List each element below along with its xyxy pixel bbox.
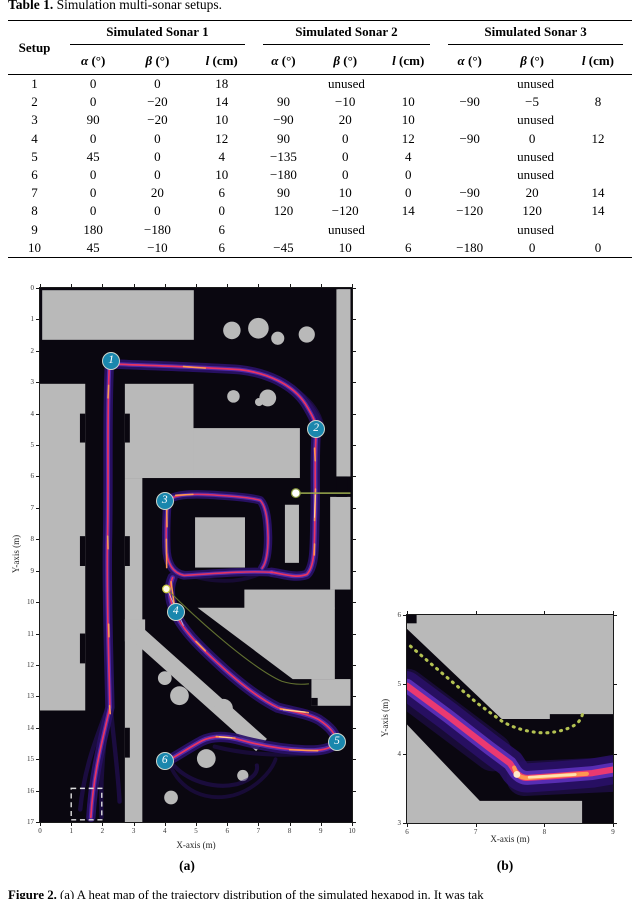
trajectory-marker-6: 6 <box>156 752 174 770</box>
tick-mark <box>613 823 617 824</box>
tick-mark <box>352 822 356 823</box>
tick-mark <box>36 696 40 697</box>
subcol-header-sonar3-length: l (cm) <box>564 48 632 75</box>
figure-caption: Figure 2. (a) A heat map of the trajecto… <box>8 888 636 899</box>
value-cell: 14 <box>564 202 632 220</box>
tick-mark <box>227 822 228 826</box>
value-cell: 0 <box>313 166 377 184</box>
y-tick-label: 2 <box>13 347 34 355</box>
value-cell: −10 <box>313 93 377 111</box>
tick-mark <box>403 823 407 824</box>
y-tick-label: 14 <box>13 724 34 732</box>
fig-b-xlabel: X-axis (m) <box>407 834 613 844</box>
paper-page: Table 1. Simulation multi-sonar setups. … <box>0 0 640 899</box>
value-cell: −5 <box>500 93 564 111</box>
x-tick-label: 1 <box>61 827 81 835</box>
table-body: 10018unusedunused20−201490−1010−90−58390… <box>8 75 632 258</box>
tick-mark <box>36 822 40 823</box>
value-cell: −45 <box>254 239 313 258</box>
value-cell: 90 <box>254 93 313 111</box>
tick-mark <box>36 445 40 446</box>
subcol-header-sonar2-beta: β (°) <box>313 48 377 75</box>
value-cell: 20 <box>500 184 564 202</box>
y-tick-label: 13 <box>13 692 34 700</box>
tick-mark <box>352 571 356 572</box>
y-tick-label: 3 <box>380 819 401 827</box>
tick-mark <box>196 822 197 826</box>
tick-mark <box>36 728 40 729</box>
trajectory-marker-3: 3 <box>156 492 174 510</box>
value-cell: 0 <box>500 130 564 148</box>
value-cell: 0 <box>61 202 125 220</box>
tick-mark <box>40 284 41 288</box>
tick-mark <box>36 571 40 572</box>
value-cell: 14 <box>190 93 254 111</box>
value-cell: 6 <box>190 239 254 258</box>
value-cell: 10 <box>377 111 439 129</box>
tick-mark <box>71 284 72 288</box>
tick-mark <box>321 822 322 826</box>
x-tick-label: 6 <box>397 828 417 836</box>
value-cell: 90 <box>61 111 125 129</box>
value-cell: 0 <box>125 148 189 166</box>
setup-cell: 8 <box>8 202 61 220</box>
value-cell: −135 <box>254 148 313 166</box>
setup-cell: 4 <box>8 130 61 148</box>
fig-b-ylabel: Y-axis (m) <box>380 699 390 737</box>
value-cell: −120 <box>439 202 500 220</box>
value-cell: −180 <box>254 166 313 184</box>
tick-mark <box>352 445 356 446</box>
value-cell: 4 <box>190 148 254 166</box>
value-cell: 120 <box>254 202 313 220</box>
x-tick-label: 10 <box>342 827 362 835</box>
value-cell: 6 <box>190 221 254 239</box>
value-cell: 90 <box>254 184 313 202</box>
value-cell: 10 <box>190 111 254 129</box>
value-cell: 0 <box>377 184 439 202</box>
subcol-header-sonar2-alpha: α (°) <box>254 48 313 75</box>
value-cell: −20 <box>125 93 189 111</box>
value-cell: 20 <box>125 184 189 202</box>
tick-mark <box>352 791 356 792</box>
unused-cell: unused <box>439 111 632 129</box>
unused-cell: unused <box>439 221 632 239</box>
tick-mark <box>352 634 356 635</box>
value-cell: 0 <box>125 202 189 220</box>
value-cell: 45 <box>61 148 125 166</box>
y-tick-label: 9 <box>13 567 34 575</box>
subcol-header-sonar2-length: l (cm) <box>377 48 439 75</box>
tick-mark <box>258 822 259 826</box>
tick-mark <box>36 414 40 415</box>
value-cell: −90 <box>254 111 313 129</box>
unused-cell: unused <box>254 75 439 94</box>
tick-mark <box>403 684 407 685</box>
tick-mark <box>36 759 40 760</box>
tick-mark <box>36 602 40 603</box>
subcol-header-sonar3-alpha: α (°) <box>439 48 500 75</box>
value-cell: −120 <box>313 202 377 220</box>
tick-mark <box>165 822 166 826</box>
tick-mark <box>613 754 617 755</box>
y-tick-label: 5 <box>13 441 34 449</box>
y-tick-label: 10 <box>13 598 34 606</box>
tick-mark <box>36 476 40 477</box>
tick-mark <box>352 665 356 666</box>
setup-column-header: Setup <box>8 21 61 75</box>
tick-mark <box>165 284 166 288</box>
value-cell: 12 <box>564 130 632 148</box>
table-title-text: Simulation multi-sonar setups. <box>53 0 222 12</box>
tick-mark <box>36 382 40 383</box>
value-cell: 20 <box>313 111 377 129</box>
y-tick-label: 15 <box>13 755 34 763</box>
value-cell: 10 <box>313 184 377 202</box>
tick-mark <box>102 822 103 826</box>
value-cell: 0 <box>61 75 125 94</box>
x-tick-label: 5 <box>186 827 206 835</box>
value-cell: −20 <box>125 111 189 129</box>
x-tick-label: 7 <box>248 827 268 835</box>
y-tick-label: 16 <box>13 787 34 795</box>
tick-mark <box>134 284 135 288</box>
value-cell: 8 <box>564 93 632 111</box>
setup-cell: 10 <box>8 239 61 258</box>
tick-mark <box>352 602 356 603</box>
value-cell: −10 <box>125 239 189 258</box>
table-row: 390−2010−902010unused <box>8 111 632 129</box>
y-tick-label: 4 <box>13 410 34 418</box>
x-tick-label: 3 <box>124 827 144 835</box>
unused-cell: unused <box>439 148 632 166</box>
value-cell: 0 <box>61 93 125 111</box>
subcaption-b: (b) <box>407 858 603 874</box>
subcol-header-sonar1-beta: β (°) <box>125 48 189 75</box>
x-tick-label: 8 <box>280 827 300 835</box>
value-cell: 4 <box>377 148 439 166</box>
value-cell: 6 <box>190 184 254 202</box>
x-tick-label: 4 <box>155 827 175 835</box>
x-tick-label: 7 <box>466 828 486 836</box>
tick-mark <box>403 615 407 616</box>
y-tick-label: 6 <box>13 472 34 480</box>
tick-mark <box>613 615 617 616</box>
map-b-graphic <box>407 615 613 823</box>
value-cell: 0 <box>125 166 189 184</box>
y-tick-label: 8 <box>13 535 34 543</box>
subcol-header-sonar1-alpha: α (°) <box>61 48 125 75</box>
value-cell: 0 <box>564 239 632 258</box>
table-title: Table 1. Simulation multi-sonar setups. <box>8 0 628 13</box>
tick-mark <box>321 284 322 288</box>
tick-mark <box>102 284 103 288</box>
tick-mark <box>613 684 617 685</box>
table-row: 54504−13504unused <box>8 148 632 166</box>
tick-mark <box>71 822 72 826</box>
value-cell: 0 <box>61 184 125 202</box>
table-row: 60010−18000unused <box>8 166 632 184</box>
value-cell: −180 <box>439 239 500 258</box>
value-cell: 12 <box>377 130 439 148</box>
table-group-header-row: Setup Simulated Sonar 1 Simulated Sonar … <box>8 21 632 49</box>
tick-mark <box>290 822 291 826</box>
tick-mark <box>352 414 356 415</box>
value-cell: 10 <box>313 239 377 258</box>
tick-mark <box>352 508 356 509</box>
tick-mark <box>352 696 356 697</box>
value-cell: −90 <box>439 130 500 148</box>
tick-mark <box>476 823 477 827</box>
setup-cell: 6 <box>8 166 61 184</box>
value-cell: 90 <box>254 130 313 148</box>
value-cell: 0 <box>190 202 254 220</box>
tick-mark <box>352 382 356 383</box>
tick-mark <box>196 284 197 288</box>
value-cell: 18 <box>190 75 254 94</box>
y-tick-label: 5 <box>380 680 401 688</box>
value-cell: 0 <box>313 130 377 148</box>
tick-mark <box>36 539 40 540</box>
robot-position-marker <box>291 489 300 498</box>
waypoint-marker <box>163 585 170 593</box>
x-tick-label: 6 <box>217 827 237 835</box>
tick-mark <box>36 791 40 792</box>
tick-mark <box>352 539 356 540</box>
tick-mark <box>352 288 356 289</box>
value-cell: 180 <box>61 221 125 239</box>
x-tick-label: 2 <box>92 827 112 835</box>
y-tick-label: 3 <box>13 378 34 386</box>
tick-mark <box>544 611 545 615</box>
tick-mark <box>227 284 228 288</box>
value-cell: 6 <box>377 239 439 258</box>
tick-mark <box>476 611 477 615</box>
table-title-number: Table 1. <box>8 0 53 12</box>
y-tick-label: 17 <box>13 818 34 826</box>
map-a-graphic <box>40 288 352 822</box>
fig-a-xlabel: X-axis (m) <box>40 840 352 850</box>
value-cell: 0 <box>313 148 377 166</box>
x-tick-label: 8 <box>534 828 554 836</box>
tick-mark <box>36 634 40 635</box>
setup-cell: 1 <box>8 75 61 94</box>
heatmap-figure-b <box>406 614 614 824</box>
tick-mark <box>36 319 40 320</box>
tick-mark <box>407 611 408 615</box>
tick-mark <box>36 665 40 666</box>
x-tick-label: 9 <box>603 828 623 836</box>
tick-mark <box>407 823 408 827</box>
setup-cell: 3 <box>8 111 61 129</box>
setup-cell: 7 <box>8 184 61 202</box>
table-row: 8000120−12014−12012014 <box>8 202 632 220</box>
trajectory-marker-4: 4 <box>167 603 185 621</box>
tick-mark <box>36 508 40 509</box>
unused-cell: unused <box>439 75 632 94</box>
tick-mark <box>352 319 356 320</box>
figure-caption-number: Figure 2. <box>8 888 57 899</box>
tick-mark <box>352 351 356 352</box>
x-tick-label: 9 <box>311 827 331 835</box>
tick-mark <box>36 288 40 289</box>
sonar1-group-header: Simulated Sonar 1 <box>61 21 254 49</box>
subcol-header-sonar3-beta: β (°) <box>500 48 564 75</box>
value-cell: 0 <box>500 239 564 258</box>
value-cell: 45 <box>61 239 125 258</box>
value-cell: 0 <box>61 166 125 184</box>
setup-cell: 5 <box>8 148 61 166</box>
unused-cell: unused <box>439 166 632 184</box>
value-cell: −90 <box>439 184 500 202</box>
tick-mark <box>352 759 356 760</box>
table-row: 10018unusedunused <box>8 75 632 94</box>
subcaption-a: (a) <box>40 858 334 874</box>
y-tick-label: 6 <box>380 611 401 619</box>
tick-mark <box>134 822 135 826</box>
value-cell: 0 <box>125 130 189 148</box>
x-tick-label: 0 <box>30 827 50 835</box>
table-subheader-row: α (°)β (°)l (cm)α (°)β (°)l (cm)α (°)β (… <box>8 48 632 75</box>
table-row: 4001290012−90012 <box>8 130 632 148</box>
subcol-header-sonar1-length: l (cm) <box>190 48 254 75</box>
value-cell: 120 <box>500 202 564 220</box>
setup-cell: 2 <box>8 93 61 111</box>
y-tick-label: 12 <box>13 661 34 669</box>
value-cell: 14 <box>377 202 439 220</box>
tick-mark <box>40 822 41 826</box>
sonar2-group-header: Simulated Sonar 2 <box>254 21 439 49</box>
tick-mark <box>403 754 407 755</box>
tick-mark <box>352 728 356 729</box>
value-cell: 0 <box>125 75 189 94</box>
table-row: 7020690100−902014 <box>8 184 632 202</box>
trajectory-marker-5: 5 <box>328 733 346 751</box>
value-cell: −180 <box>125 221 189 239</box>
tick-mark <box>544 823 545 827</box>
tick-mark <box>352 476 356 477</box>
tick-mark <box>290 284 291 288</box>
value-cell: −90 <box>439 93 500 111</box>
y-tick-label: 0 <box>13 284 34 292</box>
table-row: 20−201490−1010−90−58 <box>8 93 632 111</box>
sonar3-group-header: Simulated Sonar 3 <box>439 21 632 49</box>
value-cell: 0 <box>61 130 125 148</box>
value-cell: 10 <box>190 166 254 184</box>
figure-caption-text: (a) A heat map of the trajectory distrib… <box>57 888 484 899</box>
value-cell: 10 <box>377 93 439 111</box>
y-tick-label: 1 <box>13 315 34 323</box>
heatmap-figure-a <box>39 287 353 823</box>
setup-cell: 9 <box>8 221 61 239</box>
table-row: 1045−106−45106−18000 <box>8 239 632 258</box>
value-cell: 0 <box>377 166 439 184</box>
value-cell: 12 <box>190 130 254 148</box>
y-tick-label: 11 <box>13 630 34 638</box>
y-tick-label: 4 <box>380 750 401 758</box>
value-cell: 14 <box>564 184 632 202</box>
sonar-setups-table: Setup Simulated Sonar 1 Simulated Sonar … <box>8 20 632 258</box>
tick-mark <box>36 351 40 352</box>
table-row: 9180−1806unusedunused <box>8 221 632 239</box>
y-tick-label: 7 <box>13 504 34 512</box>
tick-mark <box>258 284 259 288</box>
unused-cell: unused <box>254 221 439 239</box>
